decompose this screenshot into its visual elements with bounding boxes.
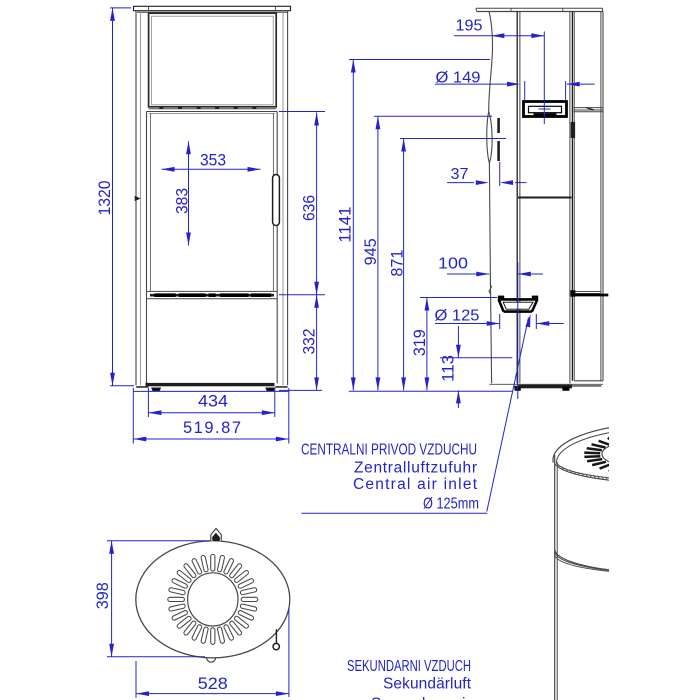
svg-text:1141: 1141 [337,207,355,243]
svg-text:519.87: 519.87 [183,419,241,437]
svg-text:871: 871 [388,250,406,277]
svg-text:195: 195 [456,18,483,35]
svg-text:SEKUNDARNI VZDUCH: SEKUNDARNI VZDUCH [347,658,471,675]
svg-text:Ø 125mm: Ø 125mm [423,496,479,513]
svg-text:636: 636 [300,195,318,221]
svg-text:Central air inlet: Central air inlet [353,476,478,493]
svg-text:Ø 125: Ø 125 [435,307,480,324]
svg-text:1320: 1320 [96,181,114,216]
svg-text:Sekundärluft: Sekundärluft [383,676,472,693]
svg-text:398: 398 [94,582,112,609]
svg-text:100: 100 [438,256,468,273]
svg-text:113: 113 [439,355,457,382]
svg-text:383: 383 [174,188,192,214]
svg-text:353: 353 [200,152,226,170]
svg-text:37: 37 [451,166,469,183]
svg-text:319: 319 [411,329,429,356]
svg-text:Ø 149: Ø 149 [436,70,481,87]
svg-text:332: 332 [300,329,318,355]
svg-text:Zentralluftzufuhr: Zentralluftzufuhr [354,460,477,477]
svg-text:528: 528 [198,675,228,693]
svg-text:945: 945 [362,238,380,265]
svg-text:434: 434 [198,393,228,411]
svg-text:Secondary air: Secondary air [371,696,471,700]
svg-text:CENTRALNI PRIVOD VZDUCHU: CENTRALNI PRIVOD VZDUCHU [301,442,477,459]
